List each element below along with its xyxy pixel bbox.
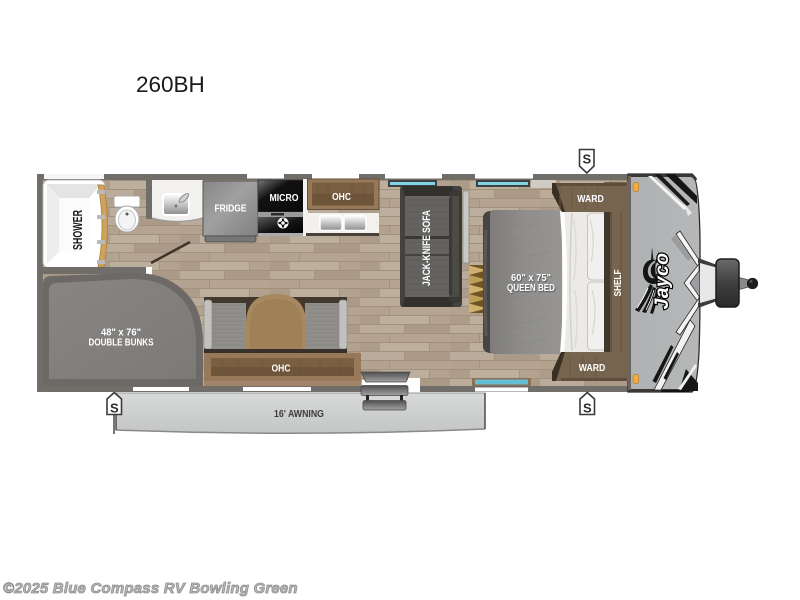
svg-text:SHOWER: SHOWER — [70, 210, 85, 250]
svg-text:S: S — [110, 401, 119, 416]
svg-text:OHC: OHC — [272, 363, 291, 375]
svg-text:S: S — [582, 152, 591, 167]
svg-text:JACK-KNIFE SOFA: JACK-KNIFE SOFA — [421, 210, 433, 286]
svg-text:SHELF: SHELF — [613, 270, 624, 297]
svg-text:FRIDGE: FRIDGE — [215, 204, 247, 215]
svg-text:Jayco: Jayco — [651, 253, 673, 310]
svg-text:WARD: WARD — [579, 363, 606, 374]
svg-text:QUEEN BED: QUEEN BED — [507, 282, 555, 294]
svg-text:MICRO: MICRO — [270, 192, 299, 204]
svg-text:DOUBLE BUNKS: DOUBLE BUNKS — [89, 337, 154, 349]
svg-text:WARD: WARD — [577, 194, 604, 205]
svg-text:OHC: OHC — [332, 191, 351, 203]
svg-text:S: S — [583, 401, 592, 416]
svg-text:16' AWNING: 16' AWNING — [274, 409, 324, 420]
